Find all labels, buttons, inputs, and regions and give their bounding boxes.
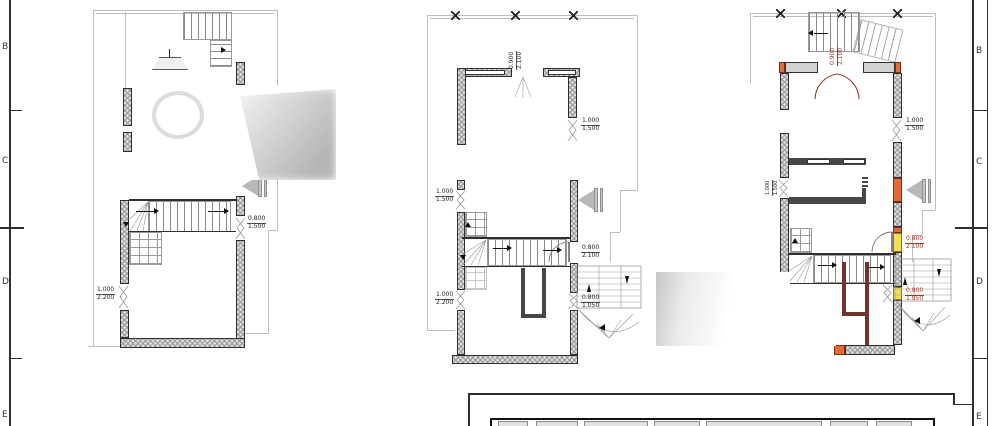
exterior-wall — [893, 142, 902, 178]
stair-direction-arrow — [460, 255, 466, 260]
blur-patch — [788, 286, 836, 346]
door-dimension-label: 0.800 2.100 — [581, 245, 600, 259]
exterior-wall — [893, 73, 902, 118]
floor-plan-right: 0.900 2.100 1.000 1.500 1.000 1.500 — [748, 0, 978, 426]
stair-direction-arrow — [880, 264, 885, 270]
door-swing-icon — [456, 190, 465, 210]
interior-wall — [862, 188, 866, 197]
door-dimension-label: 1.000 2.200 — [435, 292, 454, 306]
door-swing-icon — [456, 290, 465, 310]
stair-treads — [853, 19, 904, 63]
outline — [922, 210, 935, 211]
exterior-wall — [457, 310, 465, 355]
stair-direction-arrow — [136, 211, 154, 212]
door-swing-icon — [892, 119, 901, 142]
outline — [125, 12, 126, 88]
axis-marker-icon — [569, 11, 578, 20]
door-dimension-label: 0.900 2.100 — [509, 51, 523, 70]
outline — [93, 10, 277, 11]
door-height: 1.500 — [773, 180, 780, 196]
drawing-sheet: B C D E B C D E — [0, 0, 1000, 426]
axis-marker-icon — [776, 9, 785, 18]
door-swing-icon — [814, 72, 860, 100]
outline — [93, 10, 94, 346]
exterior-wall — [123, 132, 132, 152]
axis-marker-icon — [451, 11, 460, 20]
door-swing-icon — [513, 77, 533, 99]
exterior-wall — [120, 338, 245, 348]
door-height: 2.100 — [581, 253, 600, 260]
door-height: 2.100 — [905, 244, 924, 251]
window-lintel — [863, 62, 895, 73]
exterior-wall — [893, 202, 902, 227]
sheet-border — [9, 0, 11, 426]
stair-direction-arrow — [543, 250, 557, 251]
stair-direction-arrow — [224, 208, 229, 214]
blur-artifact — [152, 91, 204, 139]
stair-direction-arrow — [507, 245, 512, 251]
door-swing-icon — [779, 179, 788, 198]
winder-stair — [129, 201, 149, 232]
door-dimension-label: 1.000 1.500 — [905, 118, 924, 132]
outline — [620, 190, 621, 232]
stair-direction-arrow — [814, 33, 828, 34]
modified-wall — [834, 345, 845, 355]
window-lintel — [548, 70, 576, 75]
door-swing-icon — [872, 232, 893, 253]
floor-plan-left: 0.800 1.500 1.000 2.200 — [88, 0, 298, 426]
entrance-arrow-icon — [578, 190, 594, 210]
door-dimension-label: 0.900 2.100 — [830, 47, 844, 66]
blur-artifact — [208, 89, 336, 180]
modified-door — [893, 233, 902, 252]
door-swing-icon — [119, 285, 128, 309]
door-dimension-label: 1.000 1.500 — [581, 118, 600, 132]
entrance-arrow-icon — [906, 180, 922, 200]
winder-stair — [462, 239, 487, 266]
blur-patch — [656, 272, 790, 346]
grid-label: D — [2, 277, 9, 287]
stair-steps — [465, 267, 487, 290]
grid-tick — [9, 110, 22, 111]
modified-wall — [893, 178, 902, 202]
stair-direction-arrow — [208, 211, 224, 212]
stair-direction-arrow — [792, 238, 798, 243]
outline — [637, 15, 638, 191]
exterior-wall — [236, 62, 245, 85]
door-swing-icon — [568, 119, 577, 142]
exterior-wall — [123, 88, 132, 126]
grid-tick — [9, 358, 22, 359]
new-partition-wall — [865, 262, 869, 316]
entrance-arrow-icon — [594, 188, 598, 212]
entrance-arrow-icon — [928, 179, 931, 203]
window-lintel — [465, 70, 505, 75]
canopy-icon — [169, 49, 170, 57]
door-height: 1.050 — [905, 296, 924, 303]
exterior-wall — [457, 180, 465, 190]
exterior-wall — [568, 77, 577, 118]
door-height: 1.500 — [435, 197, 454, 204]
outline — [922, 210, 923, 235]
exterior-wall — [780, 133, 789, 178]
axis-marker-icon — [511, 11, 520, 20]
exterior-wall — [120, 310, 129, 338]
stair-direction-arrow — [832, 262, 837, 268]
window-lintel — [843, 159, 865, 164]
door-dimension-label: 0.800 1.050 — [581, 295, 600, 309]
door-dimension-label: 1.000 2.200 — [96, 287, 115, 301]
exterior-wall — [570, 180, 578, 242]
floor-plan-middle: 0.900 2.100 1.000 1.500 1.000 1.500 1.00… — [425, 0, 655, 426]
wall-mark — [862, 185, 868, 187]
window-lintel — [785, 62, 818, 73]
grid-label: E — [2, 410, 8, 420]
stair-direction-arrow — [808, 30, 813, 36]
stair-treads — [487, 239, 567, 266]
modified-wall — [895, 62, 901, 73]
door-height: 2.200 — [96, 295, 115, 302]
door-width: 1.000 — [765, 180, 773, 196]
blur-patch — [140, 85, 336, 180]
stair-steps — [129, 232, 162, 265]
stair-direction-arrow — [818, 265, 832, 266]
door-swing-icon — [236, 217, 245, 240]
outline — [750, 13, 751, 83]
door-height: 2.100 — [838, 47, 845, 66]
outline — [268, 230, 278, 231]
outline — [620, 190, 637, 191]
entrance-arrow-icon — [922, 179, 926, 203]
door-dimension-label: 1.000 1.500 — [435, 189, 454, 203]
door-height: 2.200 — [435, 300, 454, 307]
door-dimension-label: 0.800 1.050 — [905, 288, 924, 302]
grid-tick — [0, 227, 24, 229]
grid-label: C — [2, 156, 8, 166]
outline — [245, 333, 269, 334]
grid-label: B — [2, 42, 8, 52]
exterior-wall — [452, 355, 578, 364]
stair-direction-arrow — [221, 47, 226, 53]
stair-treads — [210, 40, 232, 67]
exterior-wall — [457, 68, 466, 145]
axis-marker-icon — [893, 9, 902, 18]
door-height: 1.050 — [581, 303, 600, 310]
sheet-border — [987, 0, 988, 426]
outline — [427, 15, 428, 330]
outline — [268, 230, 269, 333]
exterior-wall — [120, 200, 129, 284]
exterior-wall — [845, 345, 895, 355]
wall-mark — [862, 181, 868, 183]
door-dimension-label: 1.000 1.500 — [765, 180, 779, 196]
exterior-wall — [236, 196, 245, 216]
door-swing-icon — [883, 284, 892, 303]
outline — [427, 330, 455, 331]
outline — [610, 232, 620, 233]
outline — [610, 232, 611, 262]
interior-wall — [542, 268, 546, 318]
door-height: 1.500 — [247, 224, 266, 231]
stair-direction-arrow — [493, 248, 507, 249]
door-height: 1.500 — [905, 126, 924, 133]
entrance-arrow-icon — [600, 188, 603, 212]
window-lintel — [807, 159, 830, 164]
new-partition-wall — [842, 262, 846, 316]
winder-stair — [788, 255, 813, 283]
door-dimension-label: 0.800 2.100 — [905, 236, 924, 250]
stair-direction-arrow — [557, 247, 562, 253]
stair-direction-arrow — [123, 222, 129, 227]
stair-treads — [148, 201, 231, 232]
interior-wall — [521, 268, 525, 318]
exterior-wall — [236, 240, 245, 340]
canopy-icon — [152, 57, 188, 70]
door-dimension-label: 0.800 1.500 — [247, 216, 266, 230]
title-block-cell — [654, 421, 700, 426]
outline — [935, 13, 936, 210]
wall-mark — [862, 177, 868, 179]
exterior-wall — [780, 73, 789, 110]
stair-direction-arrow — [154, 208, 159, 214]
stair-treads — [183, 12, 232, 40]
door-height: 2.100 — [517, 51, 524, 70]
stair-direction-arrow — [465, 222, 471, 227]
outline — [430, 18, 634, 19]
door-height: 1.500 — [581, 126, 600, 133]
interior-wall — [789, 197, 866, 204]
